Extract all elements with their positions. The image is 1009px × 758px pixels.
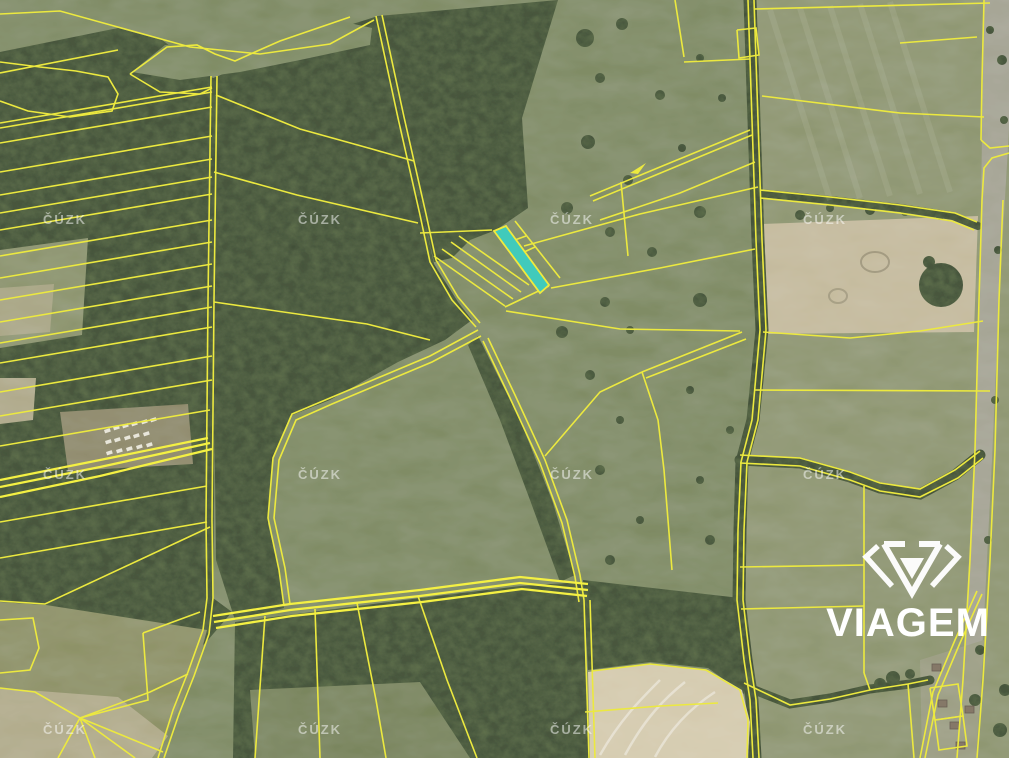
tree-clump (975, 645, 985, 655)
cuzk-watermark: ČÚZK (803, 467, 847, 482)
tree-clump (647, 247, 657, 257)
tree-clump (919, 263, 963, 307)
tree-clump (678, 144, 686, 152)
tree-clump (997, 55, 1007, 65)
bare-patch (0, 378, 36, 424)
cuzk-watermark: ČÚZK (298, 467, 342, 482)
tree-clump (686, 386, 694, 394)
tree-clump (886, 671, 900, 685)
tree-clump (705, 535, 715, 545)
tree-clump (655, 90, 665, 100)
house (950, 722, 959, 729)
cuzk-watermark: ČÚZK (803, 212, 847, 227)
tree-clump (616, 416, 624, 424)
tree-clump (718, 94, 726, 102)
tree-clump (616, 18, 628, 30)
tree-clump (600, 297, 610, 307)
map-canvas[interactable]: ČÚZKČÚZKČÚZKČÚZKČÚZKČÚZKČÚZKČÚZKČÚZKČÚZK… (0, 0, 1009, 758)
tree-clump (556, 326, 568, 338)
tree-clump (636, 516, 644, 524)
tree-clump (595, 465, 605, 475)
tree-clump (595, 73, 605, 83)
tree-clump (694, 206, 706, 218)
tree-clump (581, 135, 595, 149)
tree-clump (605, 227, 615, 237)
cuzk-watermark: ČÚZK (803, 722, 847, 737)
tree-clump (991, 396, 999, 404)
cuzk-watermark: ČÚZK (43, 722, 87, 737)
house (932, 664, 941, 671)
tree-clump (693, 293, 707, 307)
aerial-cadastral-map[interactable]: ČÚZKČÚZKČÚZKČÚZKČÚZKČÚZKČÚZKČÚZKČÚZKČÚZK… (0, 0, 1009, 758)
tree-clump (696, 476, 704, 484)
house (938, 700, 947, 707)
house (965, 706, 974, 713)
tree-clump (576, 29, 594, 47)
tree-clump (605, 555, 615, 565)
cuzk-watermark: ČÚZK (550, 722, 594, 737)
cuzk-watermark: ČÚZK (550, 212, 594, 227)
tree-clump (993, 723, 1007, 737)
parcel-boundary-line (754, 390, 990, 391)
tree-clump (905, 669, 915, 679)
brand-wordmark: VIAGEM (826, 601, 990, 645)
tree-clump (923, 256, 935, 268)
tree-clump (726, 426, 734, 434)
tree-clump (969, 694, 981, 706)
cuzk-watermark: ČÚZK (298, 722, 342, 737)
tree-clump (1000, 116, 1008, 124)
cuzk-watermark: ČÚZK (550, 467, 594, 482)
cuzk-watermark: ČÚZK (43, 212, 87, 227)
cuzk-watermark: ČÚZK (298, 212, 342, 227)
tree-clump (986, 26, 994, 34)
tree-clump (585, 370, 595, 380)
cuzk-watermark: ČÚZK (43, 467, 87, 482)
